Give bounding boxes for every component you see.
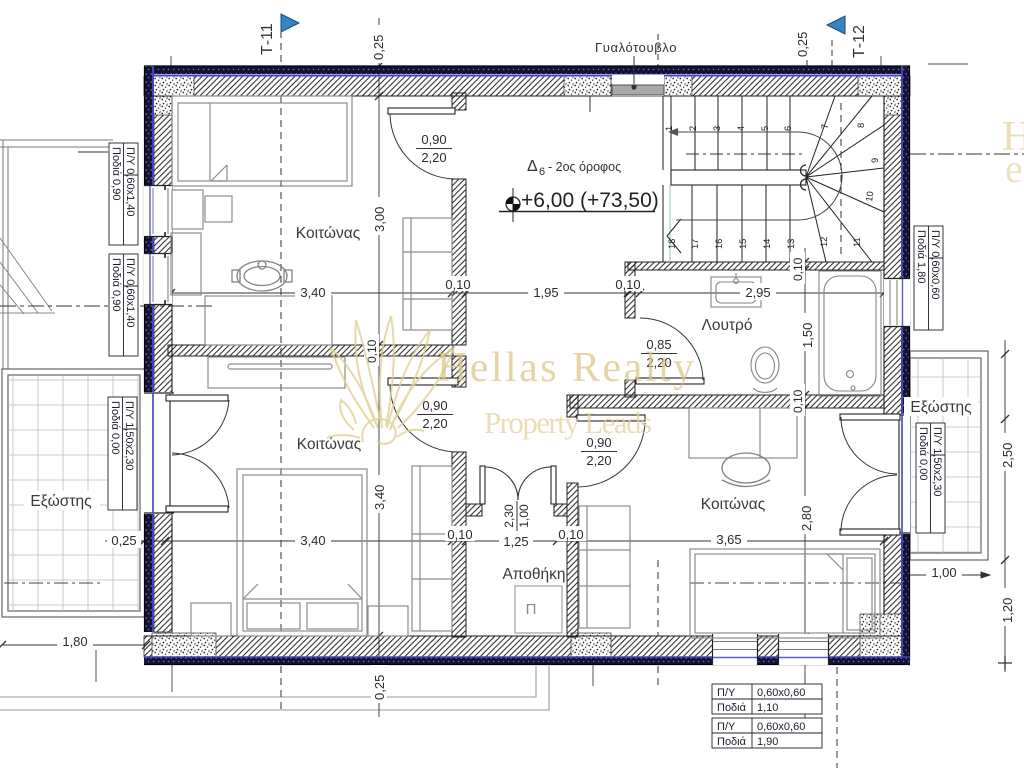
svg-text:0,10: 0,10 — [615, 277, 640, 292]
svg-text:5: 5 — [760, 126, 770, 131]
svg-text:17: 17 — [690, 239, 700, 249]
svg-text:0,25: 0,25 — [795, 32, 810, 57]
svg-text:Π/Υ 0,60x1,40: Π/Υ 0,60x1,40 — [124, 258, 136, 328]
svg-text:Αποθήκη: Αποθήκη — [502, 566, 565, 583]
svg-text:Τ-12: Τ-12 — [851, 25, 868, 58]
svg-text:Τ-11: Τ-11 — [259, 23, 276, 55]
svg-text:Κοιτώνας: Κοιτώνας — [296, 225, 360, 242]
svg-text:0,10: 0,10 — [445, 277, 470, 292]
svg-text:1,10: 1,10 — [757, 702, 778, 714]
svg-text:3: 3 — [712, 126, 722, 131]
svg-text:1,00: 1,00 — [931, 565, 956, 580]
svg-text:Εξώστης: Εξώστης — [30, 493, 91, 510]
svg-text:0,60x0,60: 0,60x0,60 — [757, 687, 805, 699]
svg-text:2,95: 2,95 — [745, 285, 770, 300]
svg-text:7: 7 — [820, 124, 830, 129]
svg-text:3,40: 3,40 — [300, 285, 325, 300]
svg-text:Ποδιά: Ποδιά — [717, 702, 747, 714]
svg-text:Δ: Δ — [527, 158, 538, 175]
svg-text:1,95: 1,95 — [533, 285, 558, 300]
svg-text:18: 18 — [667, 239, 677, 249]
svg-text:6: 6 — [539, 166, 545, 178]
svg-text:3,65: 3,65 — [716, 532, 741, 547]
svg-text:+6,00 (+73,50): +6,00 (+73,50) — [521, 189, 659, 212]
svg-text:15: 15 — [738, 239, 748, 249]
svg-text:9: 9 — [870, 158, 880, 163]
svg-text:Π/Υ: Π/Υ — [717, 687, 736, 699]
svg-text:1,20: 1,20 — [1000, 598, 1015, 623]
svg-text:0,25: 0,25 — [372, 675, 387, 700]
svg-text:3,00: 3,00 — [372, 207, 387, 232]
svg-text:Ποδιά 0,00: Ποδιά 0,00 — [917, 427, 929, 480]
svg-text:Ποδιά 1,80: Ποδιά 1,80 — [915, 230, 927, 283]
svg-text:3,40: 3,40 — [372, 485, 387, 510]
svg-text:4: 4 — [736, 126, 746, 131]
svg-text:8: 8 — [856, 123, 866, 128]
svg-text:Π/Υ 1,50x2,30: Π/Υ 1,50x2,30 — [931, 427, 943, 497]
svg-text:2: 2 — [688, 126, 698, 131]
svg-text:Κοιτώνας: Κοιτώνας — [297, 436, 361, 453]
svg-text:16: 16 — [714, 239, 724, 249]
svg-text:0,10: 0,10 — [791, 389, 805, 413]
svg-text:2,80: 2,80 — [799, 506, 814, 531]
svg-text:1,50: 1,50 — [800, 323, 815, 348]
svg-text:14: 14 — [762, 239, 772, 249]
svg-text:Λουτρό: Λουτρό — [701, 317, 752, 334]
svg-text:0,60x0,60: 0,60x0,60 — [757, 721, 805, 733]
svg-text:- 2ος όροφος: - 2ος όροφος — [548, 160, 621, 174]
svg-text:Ποδιά 0,00: Ποδιά 0,00 — [109, 401, 121, 454]
svg-text:1,25: 1,25 — [503, 534, 528, 549]
svg-text:3,40: 3,40 — [300, 533, 325, 548]
svg-text:Hellas Realty: Hellas Realty — [437, 345, 694, 391]
svg-text:2,20: 2,20 — [421, 150, 446, 165]
svg-text:e: e — [1005, 146, 1023, 191]
svg-text:Π/Υ: Π/Υ — [717, 721, 736, 733]
svg-text:Ποδιά 0,90: Ποδιά 0,90 — [110, 258, 122, 311]
svg-text:1: 1 — [664, 126, 674, 131]
svg-text:0,25: 0,25 — [111, 533, 136, 548]
svg-text:Ποδιά: Ποδιά — [717, 736, 747, 748]
svg-text:Π: Π — [526, 601, 537, 618]
svg-text:10: 10 — [864, 191, 875, 203]
svg-text:0,10: 0,10 — [791, 257, 805, 281]
svg-text:Π/Υ 0,60x1,40: Π/Υ 0,60x1,40 — [124, 147, 136, 217]
svg-text:0,10: 0,10 — [558, 527, 583, 542]
svg-text:2,20: 2,20 — [422, 416, 447, 431]
svg-text:0,10: 0,10 — [447, 527, 472, 542]
svg-text:6: 6 — [783, 126, 793, 131]
svg-text:12: 12 — [819, 237, 829, 247]
svg-text:1,00: 1,00 — [517, 504, 531, 528]
svg-text:Property Leads: Property Leads — [484, 405, 652, 440]
svg-text:0,90: 0,90 — [422, 398, 447, 413]
svg-text:Π/Υ 0,60x0,60: Π/Υ 0,60x0,60 — [929, 230, 941, 300]
svg-text:Κοιτώνας: Κοιτώνας — [701, 496, 765, 513]
svg-text:11: 11 — [852, 237, 862, 247]
svg-text:0,25: 0,25 — [371, 35, 386, 60]
svg-text:Εξώστης: Εξώστης — [910, 399, 971, 416]
svg-text:Γυαλότουβλο: Γυαλότουβλο — [595, 40, 677, 55]
svg-text:0,90: 0,90 — [421, 132, 446, 147]
svg-text:2,30: 2,30 — [502, 504, 516, 528]
svg-text:2,50: 2,50 — [1000, 443, 1015, 468]
svg-text:Π/Υ 1,50x2,30: Π/Υ 1,50x2,30 — [123, 401, 135, 471]
svg-text:1,80: 1,80 — [62, 634, 87, 649]
svg-text:2,20: 2,20 — [586, 453, 611, 468]
svg-text:13: 13 — [786, 239, 796, 249]
svg-text:Ποδιά 0,90: Ποδιά 0,90 — [110, 147, 122, 200]
svg-text:1,90: 1,90 — [757, 736, 778, 748]
